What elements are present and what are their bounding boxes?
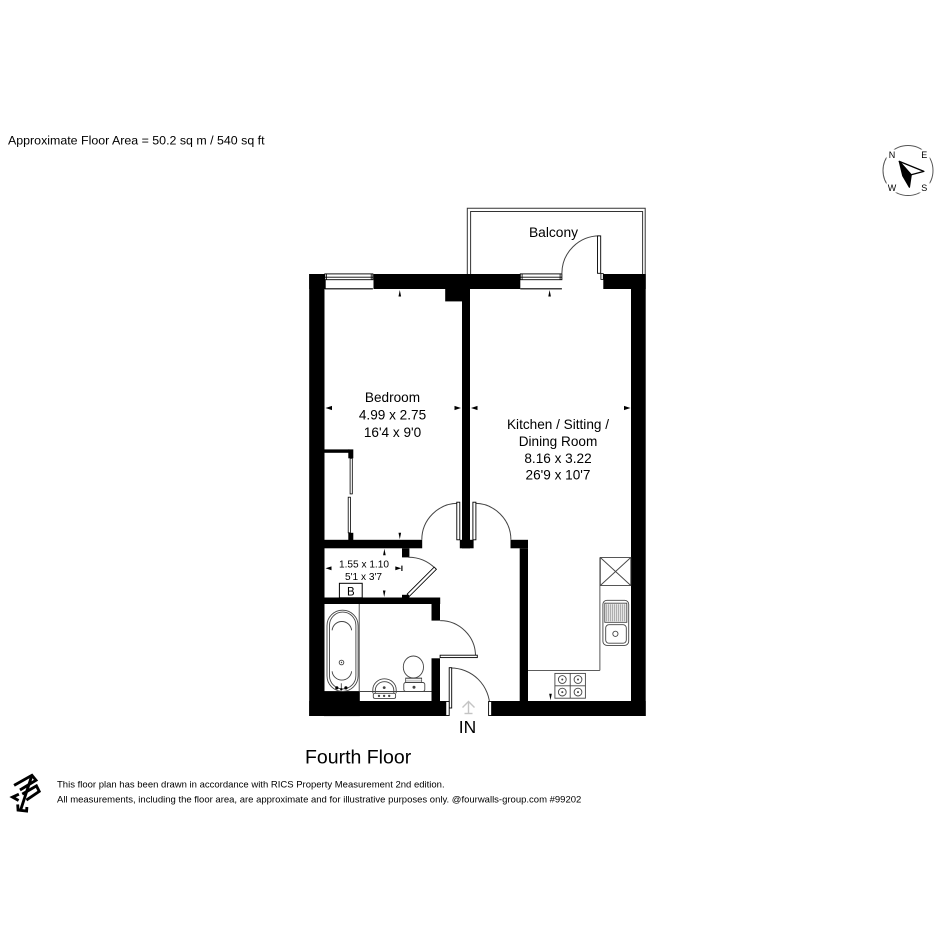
svg-text:8.16 x 3.22: 8.16 x 3.22 [524,451,591,466]
svg-text:26'9 x 10'7: 26'9 x 10'7 [526,468,591,483]
svg-text:This floor plan has been drawn: This floor plan has been drawn in accord… [57,780,445,791]
svg-text:Balcony: Balcony [529,225,578,240]
svg-text:5'1 x 3'7: 5'1 x 3'7 [345,572,382,583]
svg-text:IN: IN [459,717,476,737]
svg-text:16'4 x 9'0: 16'4 x 9'0 [364,425,422,440]
svg-text:Approximate Floor Area = 50.2: Approximate Floor Area = 50.2 sq m / 540… [8,133,265,147]
svg-text:Bedroom: Bedroom [365,390,420,405]
svg-text:1.55 x 1.10: 1.55 x 1.10 [339,560,389,571]
svg-text:Kitchen / Sitting /: Kitchen / Sitting / [507,417,609,432]
svg-text:E: E [921,150,927,160]
svg-text:Fourth Floor: Fourth Floor [305,747,412,769]
svg-text:S: S [921,183,927,193]
svg-text:All measurements, including th: All measurements, including the floor ar… [57,794,581,805]
svg-text:Dining Room: Dining Room [519,434,598,449]
svg-text:W: W [888,183,897,193]
svg-text:B: B [347,586,355,598]
svg-text:N: N [889,150,896,160]
svg-text:4.99 x 2.75: 4.99 x 2.75 [359,408,426,423]
